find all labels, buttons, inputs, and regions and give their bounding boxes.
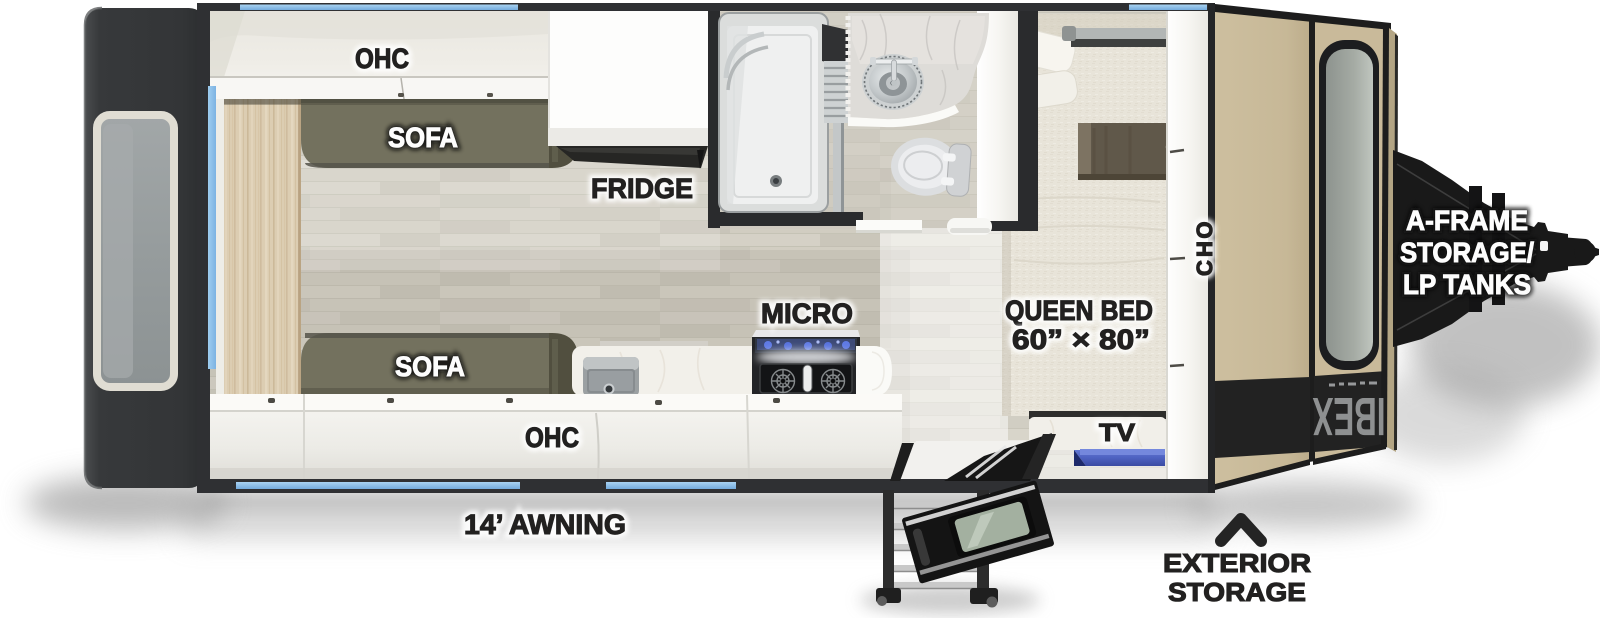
svg-text:SOFA: SOFA — [395, 351, 465, 382]
svg-text:O: O — [1192, 221, 1217, 238]
svg-text:STORAGE: STORAGE — [1168, 577, 1306, 607]
svg-text:EXTERIOR: EXTERIOR — [1163, 548, 1311, 578]
svg-text:QUEEN BED: QUEEN BED — [1005, 295, 1153, 326]
svg-text:MICRO: MICRO — [761, 298, 853, 329]
svg-text:TV: TV — [1099, 419, 1135, 447]
svg-text:60” × 80”: 60” × 80” — [1012, 324, 1150, 355]
svg-text:OHC: OHC — [525, 422, 579, 453]
svg-text:FRIDGE: FRIDGE — [591, 173, 693, 204]
svg-text:14’ AWNING: 14’ AWNING — [464, 509, 626, 540]
svg-text:LP TANKS: LP TANKS — [1403, 269, 1531, 300]
svg-text:OHC: OHC — [355, 43, 409, 74]
svg-text:H: H — [1192, 241, 1217, 257]
svg-text:STORAGE/: STORAGE/ — [1400, 237, 1534, 268]
svg-text:IBEX: IBEX — [1313, 386, 1386, 446]
svg-text:C: C — [1192, 260, 1217, 276]
svg-text:A-FRAME: A-FRAME — [1406, 205, 1528, 236]
svg-text:SOFA: SOFA — [388, 122, 458, 153]
